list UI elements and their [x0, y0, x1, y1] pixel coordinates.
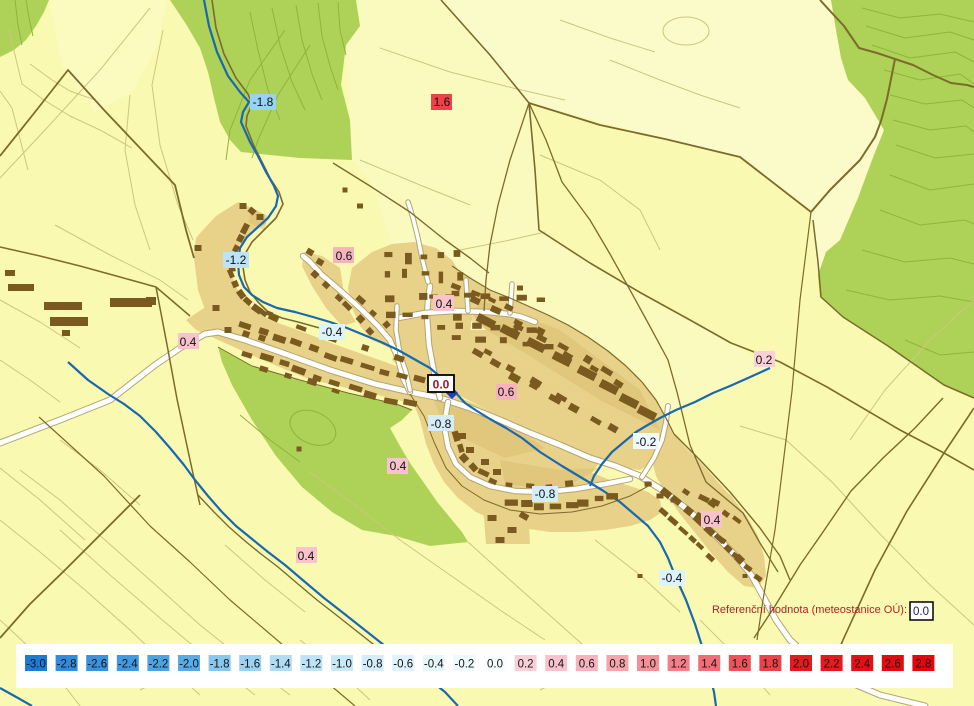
svg-text:0.6: 0.6 [336, 249, 353, 263]
svg-text:0.4: 0.4 [390, 459, 407, 473]
svg-text:-0.6: -0.6 [393, 659, 413, 671]
svg-text:0.6: 0.6 [579, 659, 595, 671]
svg-text:-2.2: -2.2 [148, 659, 168, 671]
svg-text:1.6: 1.6 [732, 659, 748, 671]
svg-text:0.2: 0.2 [756, 353, 773, 367]
svg-text:0.0: 0.0 [487, 659, 503, 671]
svg-text:1.0: 1.0 [640, 659, 656, 671]
svg-text:-0.4: -0.4 [424, 659, 444, 671]
svg-text:-1.4: -1.4 [271, 659, 291, 671]
svg-text:0.8: 0.8 [609, 659, 625, 671]
svg-text:-1.0: -1.0 [332, 659, 352, 671]
svg-text:2.4: 2.4 [854, 659, 871, 671]
svg-text:-0.8: -0.8 [431, 417, 452, 431]
svg-text:-1.2: -1.2 [301, 659, 321, 671]
svg-text:1.8: 1.8 [762, 659, 778, 671]
svg-text:2.2: 2.2 [824, 659, 840, 671]
svg-text:0.2: 0.2 [518, 659, 534, 671]
svg-text:-1.8: -1.8 [210, 659, 230, 671]
svg-text:-3.0: -3.0 [26, 659, 46, 671]
svg-text:-1.6: -1.6 [240, 659, 260, 671]
svg-text:2.0: 2.0 [793, 659, 809, 671]
svg-text:0.6: 0.6 [498, 385, 515, 399]
svg-text:-0.4: -0.4 [322, 325, 343, 339]
svg-text:2.8: 2.8 [915, 659, 931, 671]
svg-text:0.4: 0.4 [548, 659, 565, 671]
svg-text:-0.4: -0.4 [662, 571, 683, 585]
svg-text:0.4: 0.4 [704, 513, 721, 527]
svg-text:1.2: 1.2 [671, 659, 687, 671]
svg-text:0.0: 0.0 [913, 606, 929, 618]
svg-text:0.4: 0.4 [436, 297, 453, 311]
svg-text:-2.4: -2.4 [118, 659, 138, 671]
svg-text:-1.2: -1.2 [226, 253, 247, 267]
svg-text:2.6: 2.6 [885, 659, 901, 671]
svg-text:-2.0: -2.0 [179, 659, 199, 671]
svg-text:1.6: 1.6 [434, 95, 451, 109]
svg-text:0.4: 0.4 [298, 549, 315, 563]
svg-text:0.0: 0.0 [433, 378, 450, 392]
svg-text:-1.8: -1.8 [253, 95, 274, 109]
svg-text:-0.2: -0.2 [636, 435, 657, 449]
svg-text:-0.8: -0.8 [535, 487, 556, 501]
svg-text:-2.6: -2.6 [87, 659, 107, 671]
svg-text:1.4: 1.4 [701, 659, 718, 671]
svg-text:-0.8: -0.8 [363, 659, 383, 671]
svg-text:Referenční hodnota (meteostani: Referenční hodnota (meteostanice OÚ): [712, 603, 907, 616]
svg-text:-2.8: -2.8 [57, 659, 77, 671]
svg-text:0.4: 0.4 [180, 335, 197, 349]
svg-text:-0.2: -0.2 [454, 659, 474, 671]
